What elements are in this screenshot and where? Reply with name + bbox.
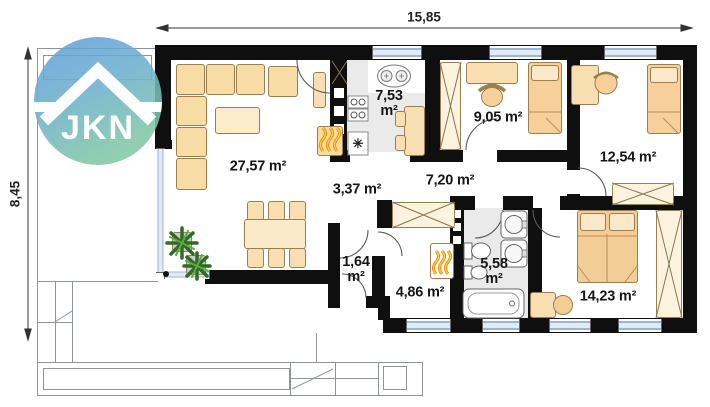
width-dimension-label: 15,85 [407,10,441,25]
bed-details [528,112,681,282]
floor-plan: JKN 27,57 m²7,53 m²9,05 m²12,54 m²3,37 m… [0,0,710,407]
height-dimension-label: 8,45 [8,181,23,207]
bedroom-1-area-label: 9,05 m² [474,110,523,125]
living-room-area-label: 27,57 m² [230,159,286,174]
bathroom-area-label: 5,58 m² [480,257,507,287]
hall-area-label: 3,37 m² [333,182,382,197]
jkn-logo-text: JKN [48,108,148,148]
radiator-icon: ✳ [349,133,367,154]
plants [167,228,210,279]
bedroom-2-area-label: 12,54 m² [600,150,656,165]
flames [321,128,451,274]
bedroom-3-area-label: 14,23 m² [580,289,636,304]
terrace-diagonals [55,311,333,389]
entry-area-label: 1,64 m² [342,255,369,285]
glass-corner-post [163,271,169,277]
corridor-area-label: 7,20 m² [426,173,475,188]
kitchen-area-label: 7,53 m² [375,89,402,119]
utility-room-area-label: 4,86 m² [396,285,445,300]
